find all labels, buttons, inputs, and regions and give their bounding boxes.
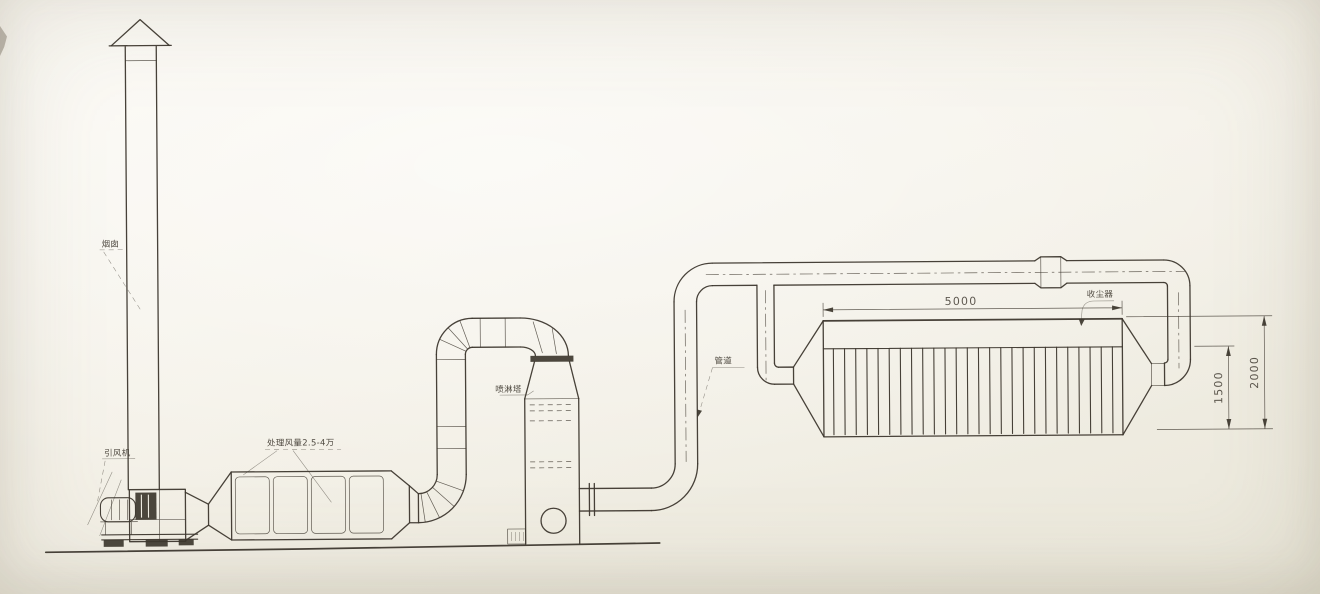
chimney-label: 烟囱 bbox=[102, 239, 120, 250]
filter-bag-line bbox=[1001, 348, 1002, 434]
filter-bag-line bbox=[867, 349, 868, 435]
collector-outlet-cone bbox=[1122, 319, 1152, 435]
filter-bag-line bbox=[856, 349, 857, 435]
duct-leader bbox=[698, 368, 712, 414]
pipe-riser bbox=[674, 302, 698, 464]
filter-bags bbox=[833, 347, 1113, 435]
filter-outlet-cone bbox=[391, 471, 409, 539]
duct-connector bbox=[409, 486, 418, 523]
fan-outlet-cone bbox=[185, 492, 208, 540]
collector-inlet-cone bbox=[793, 321, 824, 437]
scrubber-drain-box bbox=[508, 529, 526, 544]
filter-bag-line bbox=[1112, 347, 1113, 433]
scrubber-shell bbox=[525, 399, 580, 544]
filter-bag-line bbox=[923, 348, 924, 434]
dim-5000-text: 5000 bbox=[945, 295, 978, 308]
filter-bag-line bbox=[967, 348, 968, 434]
filter-bag-line bbox=[889, 348, 890, 434]
scrubber-top-cone bbox=[524, 362, 578, 399]
duct-elbow-upper bbox=[436, 318, 472, 354]
filter-bag-line bbox=[833, 349, 834, 435]
photographed-drawing: 烟囱 bbox=[0, 0, 1320, 594]
induced-draft-fan: 引风机 bbox=[87, 447, 198, 547]
collector-return-drop bbox=[1151, 286, 1191, 386]
filter-bag-line bbox=[1034, 347, 1035, 433]
filter-bag-line bbox=[1090, 347, 1091, 433]
fan-motor bbox=[100, 498, 137, 535]
filter-bag-line bbox=[900, 348, 901, 434]
carbon-filter-box: 处理风量2.5-4万 bbox=[185, 437, 410, 541]
segmented-duct bbox=[408, 318, 569, 523]
chimney-leader bbox=[104, 252, 141, 311]
ground-line bbox=[46, 543, 660, 552]
dust-collector-label: 收尘器 bbox=[1087, 289, 1114, 300]
filter-box-label: 处理风量2.5-4万 bbox=[267, 437, 335, 448]
duct-label: 管道 bbox=[714, 355, 732, 366]
fan-label: 引风机 bbox=[104, 448, 131, 459]
filter-bag-line bbox=[978, 348, 979, 434]
filter-bag-line bbox=[990, 348, 991, 434]
spray-levels bbox=[530, 405, 574, 468]
dust-collector: 收尘器 bbox=[793, 289, 1152, 437]
filter-bag-line bbox=[845, 349, 846, 435]
fan-inlet-lines bbox=[87, 472, 121, 536]
filter-bag-line bbox=[1045, 347, 1046, 433]
filter-bag-line bbox=[911, 348, 912, 434]
duct-horizontal-run bbox=[472, 318, 520, 347]
dim-2000-text: 2000 bbox=[1248, 356, 1261, 389]
filter-door-panel-4 bbox=[349, 476, 383, 533]
filter-bag-line bbox=[1079, 347, 1080, 433]
chimney-cap bbox=[109, 19, 171, 45]
filter-bag-line bbox=[1023, 347, 1024, 433]
filter-door-panel-2 bbox=[273, 476, 307, 533]
dust-collector-leader-arrow bbox=[1079, 319, 1085, 327]
branch-drop-pipe bbox=[757, 285, 794, 384]
scrubber-manhole bbox=[541, 508, 566, 533]
duct-riser bbox=[436, 354, 466, 474]
filter-bag-line bbox=[934, 348, 935, 434]
dim-1500-text: 1500 bbox=[1212, 371, 1225, 404]
filter-bag-line bbox=[945, 348, 946, 434]
drawing-canvas: 烟囱 bbox=[0, 0, 1320, 594]
pipe-elbow-top bbox=[674, 263, 713, 302]
filter-bag-line bbox=[1012, 348, 1013, 434]
filter-inlet-cone bbox=[208, 472, 231, 540]
chimney: 烟囱 bbox=[98, 19, 174, 489]
chimney-body bbox=[125, 47, 159, 490]
scrubber-outlet-nozzle bbox=[579, 483, 651, 516]
scrubber-inlet-flange bbox=[530, 356, 573, 362]
filter-door-panel-3 bbox=[311, 476, 345, 533]
fan-base bbox=[102, 534, 198, 547]
scrubber-label: 喷淋塔 bbox=[495, 384, 522, 395]
filter-label-shelf bbox=[265, 449, 341, 450]
duct-leader-arrow bbox=[697, 409, 702, 417]
duct-elbow-lower bbox=[418, 474, 466, 522]
dimension-5000: 5000 bbox=[823, 294, 1122, 317]
filter-bag-line bbox=[878, 348, 879, 434]
fan-coupling-block bbox=[135, 493, 156, 520]
filter-bag-line bbox=[956, 348, 957, 434]
collector-body bbox=[823, 319, 1123, 437]
filter-bag-line bbox=[1068, 347, 1069, 433]
pipe-elbow-right-down bbox=[1164, 260, 1190, 286]
filter-bag-line bbox=[1101, 347, 1102, 433]
scrubber-tower: 喷淋塔 bbox=[495, 356, 580, 545]
overhead-pipe bbox=[706, 256, 1186, 290]
filter-bag-line bbox=[1057, 347, 1058, 433]
pipe-elbow-up bbox=[651, 464, 698, 511]
duct-elbow-down bbox=[520, 318, 568, 356]
filter-door-panel-1 bbox=[235, 477, 269, 534]
dimension-2000: 2000 bbox=[1126, 316, 1273, 430]
